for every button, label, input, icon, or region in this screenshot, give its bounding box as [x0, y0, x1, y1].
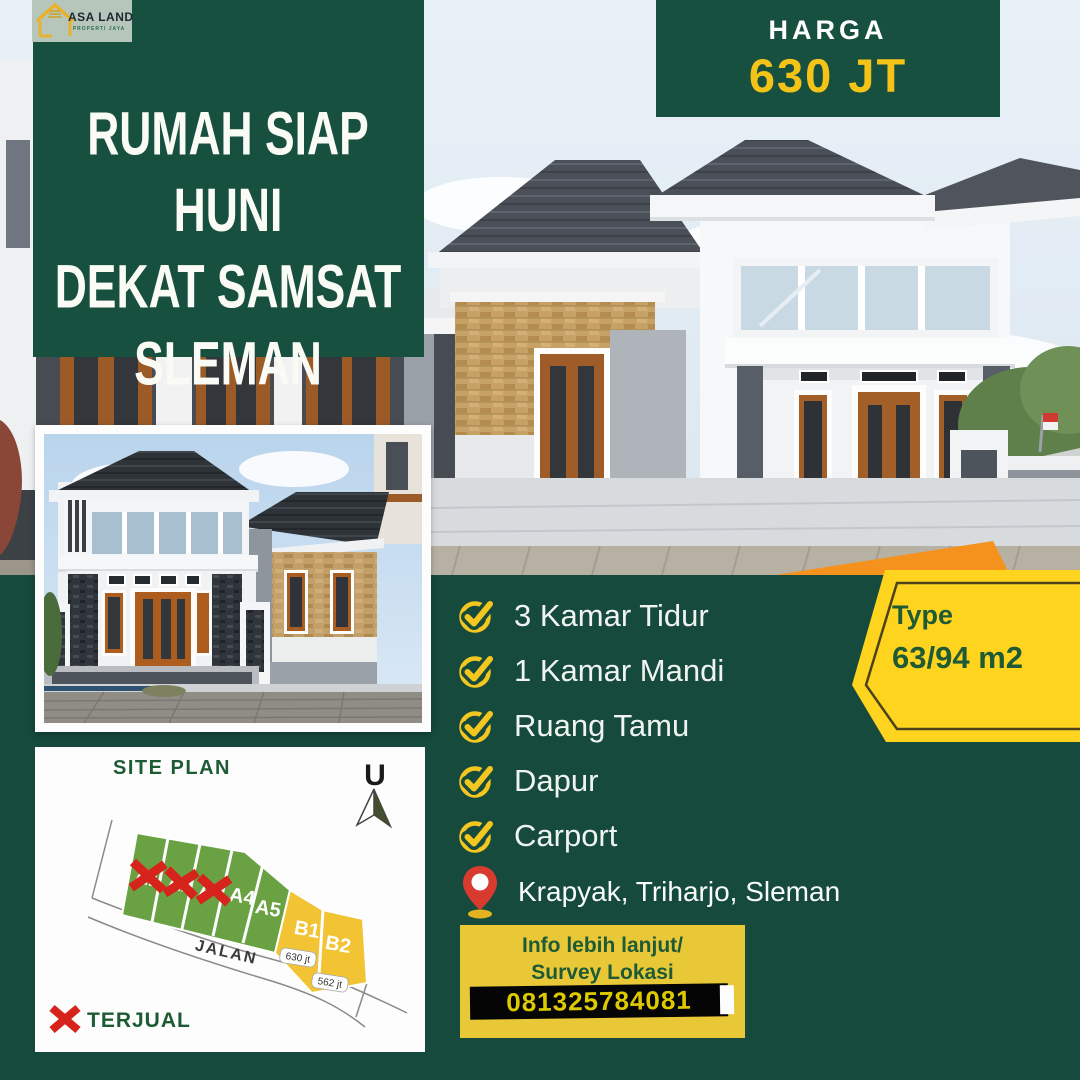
- feature-list: 3 Kamar Tidur 1 Kamar Mandi Ruang Tamu: [455, 594, 724, 858]
- brand-name: ASA LAND: [68, 10, 130, 24]
- site-plan: SITE PLAN U A1: [35, 747, 425, 1052]
- type-badge: Type 63/94 m2: [770, 528, 1080, 748]
- feature-item: Ruang Tamu: [455, 704, 724, 748]
- plot-label-a4: A4: [227, 884, 257, 910]
- title-line-1: RUMAH SIAP HUNI: [33, 96, 423, 249]
- feature-label: 3 Kamar Tidur: [514, 598, 709, 634]
- title-line-3: SLEMAN: [33, 326, 423, 403]
- check-icon: [455, 759, 499, 803]
- brand-logo: ASA LAND PROPERTI JAYA: [32, 0, 132, 42]
- flyer: RUMAH SIAP HUNI DEKAT SAMSAT SLEMAN ASA …: [0, 0, 1080, 1080]
- map-pin-icon: [458, 864, 502, 920]
- compass-needle-icon: [357, 789, 391, 827]
- contact-line-2: Survey Lokasi: [460, 961, 745, 985]
- title-box: RUMAH SIAP HUNI DEKAT SAMSAT SLEMAN: [33, 0, 424, 357]
- plot-label-b1: B1: [292, 917, 321, 943]
- type-value: 63/94 m2: [892, 640, 1023, 676]
- legend-sold-label: TERJUAL: [87, 1009, 191, 1032]
- contact-line-1: Info lebih lanjut/: [460, 934, 745, 958]
- phone-bar: 081325784081: [470, 983, 728, 1020]
- left-house-strip: [0, 60, 36, 575]
- site-plan-title: SITE PLAN: [113, 757, 231, 779]
- location-text: Krapyak, Triharjo, Sleman: [518, 876, 840, 908]
- plot-label-a5: A5: [253, 896, 282, 922]
- title-line-2: DEKAT SAMSAT: [33, 249, 423, 326]
- feature-label: Ruang Tamu: [514, 708, 689, 744]
- location-row: Krapyak, Triharjo, Sleman: [458, 864, 840, 920]
- legend-sold-icon: [52, 1008, 78, 1030]
- check-icon: [455, 814, 499, 858]
- boundary-line: [92, 820, 112, 898]
- check-icon: [455, 649, 499, 693]
- brand-tagline: PROPERTI JAYA: [68, 26, 130, 32]
- inset-front-house: [49, 451, 259, 671]
- type-label: Type: [892, 600, 953, 631]
- feature-item: 1 Kamar Mandi: [455, 649, 724, 693]
- compass-label: U: [364, 759, 386, 792]
- check-icon: [455, 594, 499, 638]
- contact-box: Info lebih lanjut/ Survey Lokasi 0813257…: [460, 925, 745, 1038]
- feature-item: Carport: [455, 814, 724, 858]
- feature-item: Dapur: [455, 759, 724, 803]
- plot-label-b2: B2: [323, 932, 352, 958]
- check-icon: [455, 704, 499, 748]
- plot-boundary-right: [356, 983, 367, 1017]
- feature-label: Dapur: [514, 763, 598, 799]
- feature-label: Carport: [514, 818, 617, 854]
- price-label: HARGA: [769, 15, 888, 46]
- page-title: RUMAH SIAP HUNI DEKAT SAMSAT SLEMAN: [33, 96, 423, 403]
- phone-number: 081325784081: [506, 985, 692, 1019]
- price-value: 630 JT: [749, 48, 907, 103]
- feature-item: 3 Kamar Tidur: [455, 594, 724, 638]
- orange-ribbon: [775, 541, 1010, 575]
- price-badge: HARGA 630 JT: [656, 0, 1000, 117]
- inset-bg-house: [374, 434, 422, 544]
- inset-house-photo: [35, 425, 431, 732]
- feature-label: 1 Kamar Mandi: [514, 653, 724, 689]
